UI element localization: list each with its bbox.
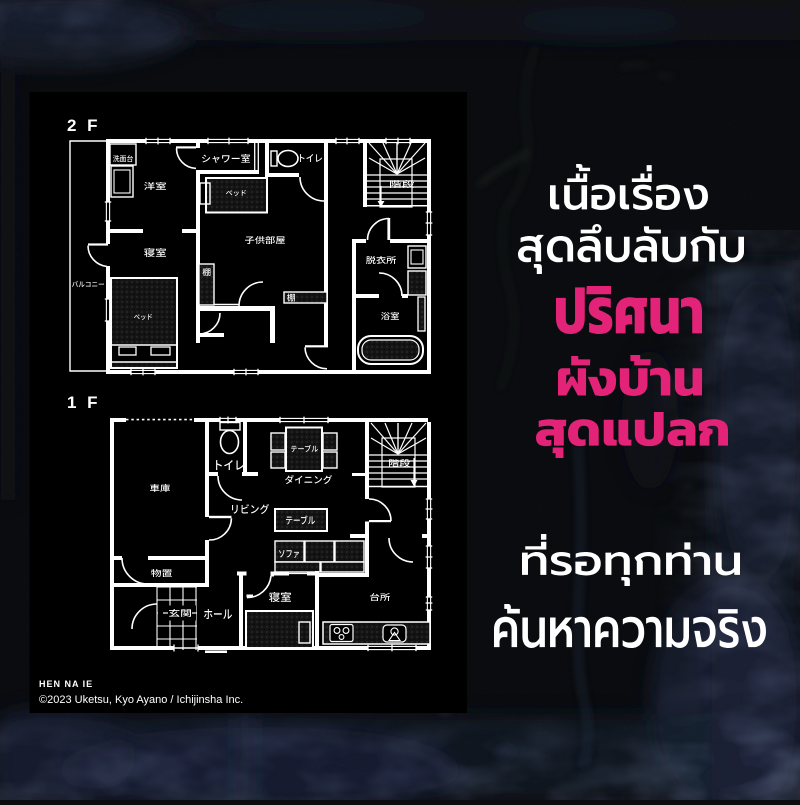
svg-text:1 F: 1 F: [67, 393, 101, 412]
svg-text:2 F: 2 F: [67, 116, 101, 135]
svg-text:©2023 Uketsu, Kyo Ayano / Ichi: ©2023 Uketsu, Kyo Ayano / Ichijinsha Inc…: [39, 694, 243, 706]
svg-text:HEN NA IE: HEN NA IE: [39, 679, 93, 689]
